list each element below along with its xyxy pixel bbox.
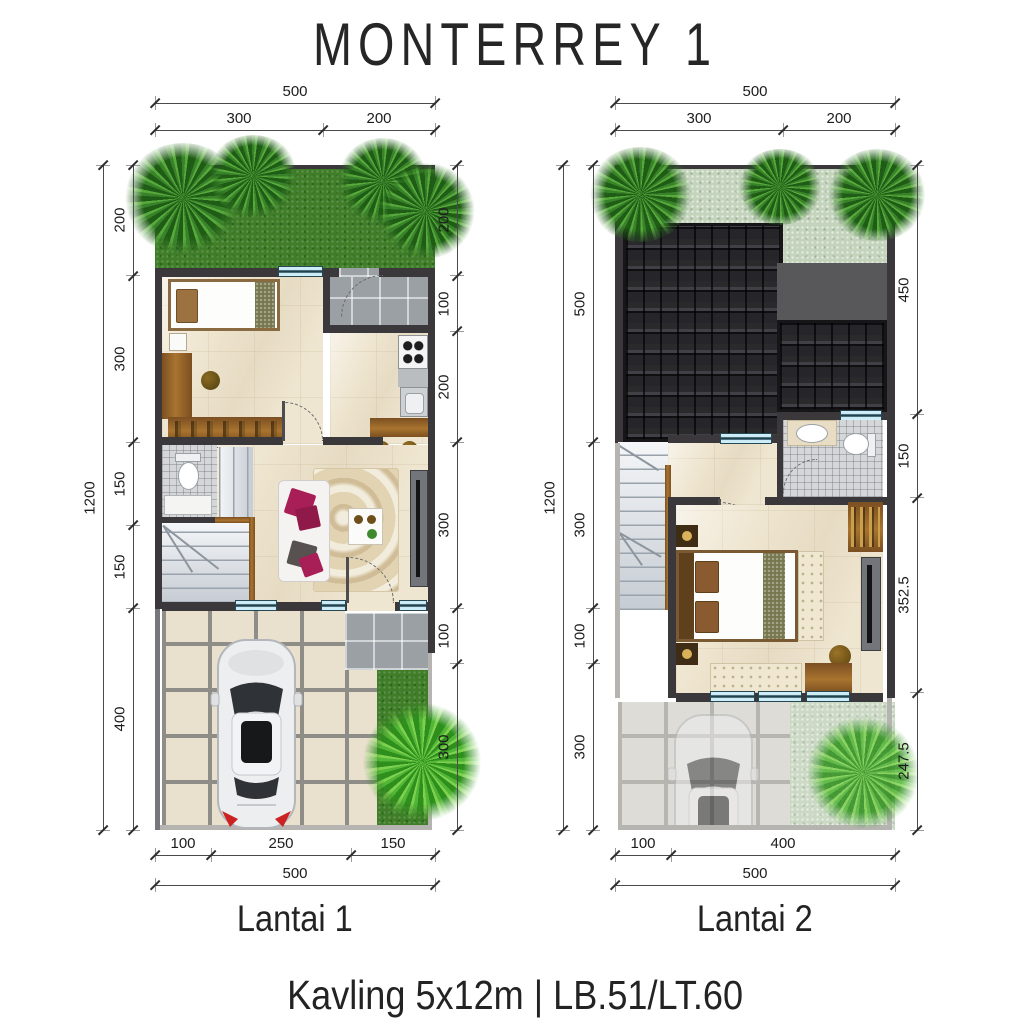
dimension-tick (890, 98, 900, 108)
dimension-guide (450, 608, 464, 609)
dimension-tick (912, 409, 922, 419)
dimension-tick (452, 825, 462, 835)
service-divider-wall (323, 268, 330, 333)
dimension-line (593, 165, 594, 830)
car-below-view (667, 710, 762, 830)
floorplan-lantai-1 (155, 165, 435, 830)
dimension-tick (912, 688, 922, 698)
palm-plant-icon (207, 135, 299, 217)
dimension-tick (452, 659, 462, 669)
bed-bench (798, 551, 824, 641)
stair-winder-line (619, 445, 659, 471)
palm-plant-icon (363, 703, 481, 821)
dimension-tick (150, 850, 160, 860)
floor-label-text: Lantai 2 (697, 898, 813, 940)
dimension-guide (126, 525, 140, 526)
concrete-deck (777, 263, 887, 320)
dimension-tick (430, 850, 440, 860)
dimension-tick (452, 437, 462, 447)
dimension-guide (126, 275, 140, 276)
front-window (758, 691, 802, 702)
shoes-row (171, 421, 280, 438)
dimension-guide (450, 830, 464, 831)
roof-right (777, 320, 887, 412)
dimension-line (155, 855, 435, 856)
quilted-mat (710, 663, 802, 693)
dimension-label: 400 (112, 707, 129, 732)
double-bed (676, 550, 798, 642)
dimension-guide (323, 123, 324, 137)
dimension-label: 300 (686, 110, 711, 127)
dimension-tick (610, 98, 620, 108)
stair-winder-line (163, 525, 219, 569)
dimension-line (917, 165, 918, 830)
dimension-label: 500 (742, 865, 767, 882)
roof-main (623, 223, 783, 442)
dimension-label: 500 (572, 291, 589, 316)
element (241, 721, 272, 763)
dimension-label: 150 (112, 471, 129, 496)
dimension-tick (452, 160, 462, 170)
sink-icon (796, 424, 828, 443)
dimension-guide (155, 878, 156, 892)
dimension-tick (588, 437, 598, 447)
dimension-guide (435, 96, 436, 110)
dimension-guide (435, 123, 436, 137)
dimension-guide (351, 848, 352, 862)
dimension-label: 150 (380, 835, 405, 852)
car-top-view (210, 635, 303, 833)
palm-plant-icon (377, 163, 475, 259)
dimension-tick (588, 825, 598, 835)
bedroom-left-wall (668, 497, 676, 698)
dimension-guide (96, 165, 110, 166)
dimension-guide (910, 830, 924, 831)
element (228, 650, 284, 676)
page-title: MONTERREY 1 (0, 10, 1030, 79)
nightstand (676, 525, 698, 547)
sink-basin (405, 393, 424, 414)
palm-plant-icon (737, 149, 823, 225)
dimension-tick (912, 492, 922, 502)
dimension-line (155, 885, 435, 886)
dimension-label: 300 (572, 734, 589, 759)
dimension-guide (450, 331, 464, 332)
bed-pillow (176, 289, 198, 323)
kitchen-front-wall (323, 437, 383, 445)
dimension-tick (452, 326, 462, 336)
coffee-table (348, 508, 383, 545)
dimension-tick (430, 125, 440, 135)
floor-label-lantai-1: Lantai 1 (155, 898, 435, 940)
dimension-tick (890, 125, 900, 135)
dimension-tick (588, 659, 598, 669)
dimension-tick (128, 437, 138, 447)
front-window (235, 600, 277, 611)
nightstand (676, 643, 698, 665)
stove-icon (398, 335, 428, 369)
dimension-label: 400 (770, 835, 795, 852)
dimension-guide (895, 878, 896, 892)
front-door-opening (347, 602, 395, 611)
dimension-tick (128, 825, 138, 835)
dimension-tick (150, 98, 160, 108)
dimension-tick (98, 160, 108, 170)
dimension-label: 1200 (82, 481, 99, 514)
dining-table (370, 418, 428, 437)
nightstand-lamp (682, 649, 692, 659)
dimension-guide (435, 848, 436, 862)
element (294, 693, 302, 706)
dimension-label: 200 (366, 110, 391, 127)
dimension-guide (126, 830, 140, 831)
dimension-tick (128, 271, 138, 281)
dimension-guide (126, 608, 140, 609)
dimension-tick (150, 125, 160, 135)
front-window (710, 691, 755, 702)
hall-floor (668, 442, 777, 505)
palm-plant-icon (588, 147, 693, 242)
nightstand (169, 333, 187, 351)
dimension-label: 352.5 (896, 576, 913, 614)
dimension-guide (450, 165, 464, 166)
element (751, 768, 759, 781)
dimension-label: 100 (436, 291, 453, 316)
dimension-tick (558, 825, 568, 835)
dimension-guide (586, 663, 600, 664)
dimension-guide (450, 442, 464, 443)
dimension-label: 300 (112, 346, 129, 371)
dimension-guide (615, 848, 616, 862)
stair-winder-line (163, 525, 193, 572)
bedroom-stool (201, 371, 220, 390)
bed-headboard (679, 553, 694, 639)
dimension-label: 200 (436, 374, 453, 399)
page-title-text: MONTERREY 1 (313, 10, 717, 79)
terrace-tiles (345, 613, 428, 670)
dimension-guide (155, 123, 156, 137)
dimension-line (615, 855, 895, 856)
dimension-guide (435, 878, 436, 892)
floorplan-page: MONTERREY 1 (0, 0, 1030, 1030)
dimension-guide (586, 608, 600, 609)
wardrobe-hangers (851, 507, 880, 547)
dimension-guide (783, 123, 784, 137)
bedroom-back-window (278, 266, 323, 277)
dimension-tick (430, 98, 440, 108)
dimension-tick (778, 125, 788, 135)
dimension-label: 100 (436, 624, 453, 649)
dimension-tick (98, 825, 108, 835)
dimension-tick (558, 160, 568, 170)
dimension-guide (96, 830, 110, 831)
single-bed (168, 279, 280, 331)
dimension-label: 450 (896, 277, 913, 302)
dimension-guide (615, 878, 616, 892)
dimension-tick (206, 850, 216, 860)
floor-label-text: Lantai 1 (237, 898, 353, 940)
front-window (321, 600, 346, 611)
bed-pillow (695, 561, 719, 593)
dimension-tick (452, 603, 462, 613)
dimension-tick (890, 880, 900, 890)
kitchen-back-wall (323, 325, 428, 333)
dimension-tick (666, 850, 676, 860)
bed-pillow (695, 601, 719, 633)
dimension-tick (588, 603, 598, 613)
dimension-line (615, 130, 895, 131)
dimension-label: 250 (268, 835, 293, 852)
dimension-line (615, 103, 895, 104)
dimension-label: 300 (572, 513, 589, 538)
dimension-guide (586, 442, 600, 443)
dimension-guide (895, 123, 896, 137)
dimension-label: 300 (436, 513, 453, 538)
dimension-guide (450, 663, 464, 664)
dimension-guide (910, 414, 924, 415)
stairs (618, 442, 668, 610)
dimension-tick (610, 850, 620, 860)
caption: Kavling 5x12m | LB.51/LT.60 (0, 972, 1030, 1019)
palm-plant-icon (827, 149, 927, 241)
toilet-icon (843, 433, 869, 455)
front-window (806, 691, 850, 702)
toilet-icon (178, 462, 199, 490)
dimension-guide (211, 848, 212, 862)
hall-window (720, 433, 772, 444)
dimension-tick (890, 850, 900, 860)
table-plant (367, 529, 377, 539)
dimension-tick (430, 880, 440, 890)
right-wall (428, 268, 435, 653)
dimension-label: 150 (112, 554, 129, 579)
bath-vanity (164, 495, 212, 515)
stairs-lower (162, 523, 253, 603)
front-window (399, 600, 427, 611)
dimension-label: 100 (572, 624, 589, 649)
dimension-guide (126, 442, 140, 443)
dimension-tick (912, 825, 922, 835)
kitchen-counter (398, 369, 428, 387)
table-plate (367, 515, 376, 524)
dimension-label: 500 (742, 83, 767, 100)
dimension-tick (610, 125, 620, 135)
vanity-counter (787, 420, 837, 446)
bathroom-side-wall (777, 420, 783, 497)
dimension-tick (610, 880, 620, 890)
dimension-guide (615, 123, 616, 137)
stair-rail (249, 517, 255, 603)
dimension-guide (615, 96, 616, 110)
stair-winder-line (619, 532, 643, 566)
sofa (278, 480, 330, 582)
dimension-line (155, 130, 435, 131)
dimension-line (133, 165, 134, 830)
dimension-guide (671, 848, 672, 862)
kitchen-sink-icon (400, 387, 428, 417)
wardrobe (848, 502, 883, 552)
dimension-guide (556, 165, 570, 166)
dimension-line (563, 165, 564, 830)
right-wall (887, 169, 895, 698)
stairs-upper (219, 447, 253, 517)
stair-winder-line (619, 532, 661, 557)
dimension-label: 150 (896, 443, 913, 468)
dimension-guide (450, 275, 464, 276)
caption-text: Kavling 5x12m | LB.51/LT.60 (287, 972, 743, 1019)
dimension-tick (346, 850, 356, 860)
toilet-tank (175, 453, 201, 462)
dimension-label: 200 (826, 110, 851, 127)
bed-blanket (255, 282, 275, 328)
left-lot-edge (615, 443, 620, 698)
left-wall (155, 268, 162, 609)
dimension-tick (150, 880, 160, 890)
dimension-guide (910, 497, 924, 498)
car-top-view (667, 710, 760, 830)
floorplan-lantai-2 (615, 165, 895, 830)
wood-mat (805, 663, 852, 693)
dimension-guide (586, 830, 600, 831)
dimension-label: 300 (226, 110, 251, 127)
sofa-pillow (295, 505, 321, 531)
dimension-guide (155, 848, 156, 862)
dimension-label: 500 (282, 865, 307, 882)
table-plate (354, 515, 363, 524)
dimension-line (615, 885, 895, 886)
dimension-label: 100 (630, 835, 655, 852)
dimension-line (155, 103, 435, 104)
dimension-guide (910, 692, 924, 693)
bedroom-front-wall (162, 437, 283, 445)
tv-console (410, 470, 428, 587)
dimension-label: 100 (170, 835, 195, 852)
dimension-tick (452, 271, 462, 281)
dimension-guide (895, 848, 896, 862)
dimension-label: 500 (282, 83, 307, 100)
dimension-tick (128, 520, 138, 530)
bed-blanket (763, 553, 785, 639)
tv-console (861, 557, 881, 651)
dimension-guide (155, 96, 156, 110)
palm-plant-icon (807, 717, 919, 829)
dimension-guide (556, 830, 570, 831)
element (668, 768, 676, 781)
dimension-tick (318, 125, 328, 135)
dimension-label: 1200 (542, 481, 559, 514)
stove-burners (401, 338, 425, 366)
element (211, 693, 219, 706)
wardrobe (162, 353, 192, 419)
left-lot-edge (155, 609, 160, 830)
dimension-guide (895, 96, 896, 110)
dimension-tick (128, 603, 138, 613)
nightstand-lamp (682, 531, 692, 541)
dimension-line (103, 165, 104, 830)
floor-label-lantai-2: Lantai 2 (615, 898, 895, 940)
